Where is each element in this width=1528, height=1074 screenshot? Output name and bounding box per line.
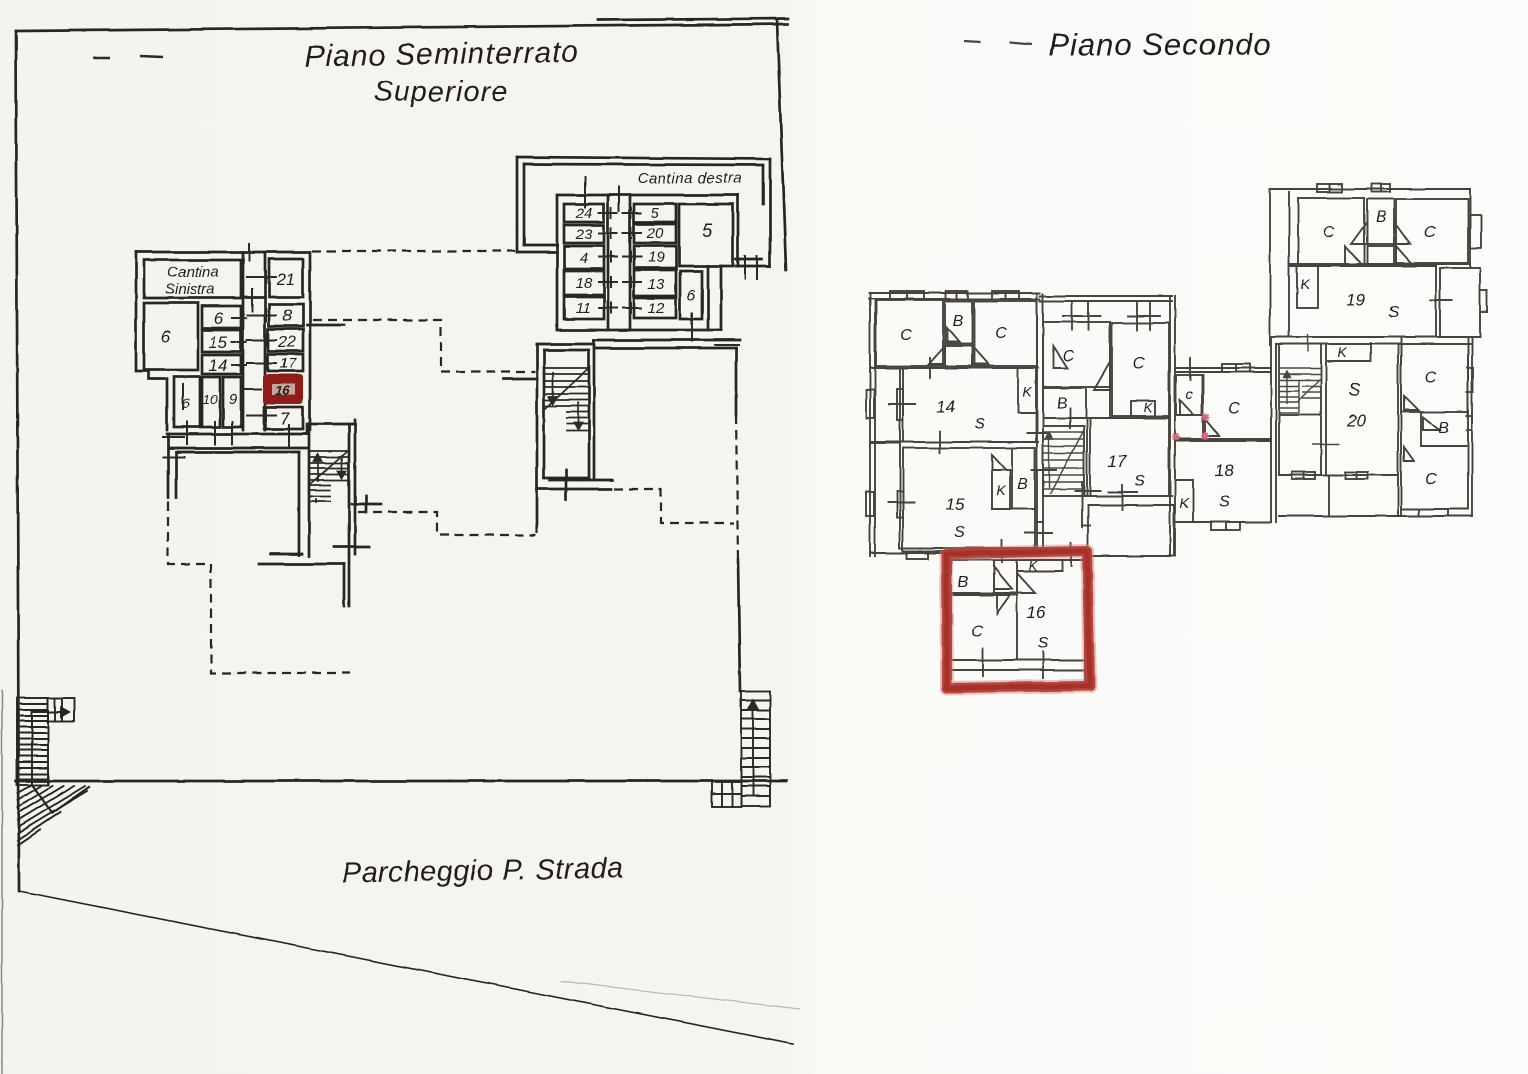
svg-text:K: K: [1337, 344, 1347, 360]
svg-text:6: 6: [687, 287, 696, 304]
svg-text:15: 15: [209, 333, 228, 352]
svg-text:19: 19: [1347, 291, 1366, 310]
svg-text:C: C: [1424, 224, 1436, 241]
svg-text:17: 17: [280, 355, 297, 372]
svg-text:Superiore: Superiore: [374, 76, 509, 108]
svg-text:B: B: [1439, 420, 1450, 437]
svg-text:K: K: [996, 482, 1006, 498]
svg-text:C: C: [995, 325, 1007, 342]
svg-text:K: K: [1179, 495, 1189, 511]
svg-text:21: 21: [276, 270, 296, 289]
svg-text:6: 6: [161, 327, 171, 346]
svg-text:12: 12: [648, 300, 665, 317]
svg-text:13: 13: [648, 276, 665, 293]
svg-text:C: C: [971, 623, 983, 640]
svg-text:K: K: [1300, 276, 1310, 292]
svg-text:6: 6: [214, 309, 224, 328]
svg-text:11: 11: [575, 300, 591, 317]
svg-text:Sinistra: Sinistra: [165, 281, 215, 298]
svg-text:20: 20: [1347, 411, 1367, 430]
svg-text:C: C: [1424, 369, 1436, 386]
svg-text:Piano Seminterrato: Piano Seminterrato: [304, 36, 579, 74]
svg-text:C: C: [1062, 348, 1074, 365]
svg-text:Piano Secondo: Piano Secondo: [1048, 27, 1271, 62]
svg-text:10: 10: [203, 392, 218, 407]
svg-text:c: c: [1186, 386, 1193, 402]
svg-text:S: S: [1348, 380, 1360, 400]
svg-text:22: 22: [277, 334, 296, 351]
svg-text:Cantina: Cantina: [167, 264, 219, 281]
svg-text:16: 16: [275, 383, 290, 398]
svg-text:C: C: [1228, 400, 1240, 417]
svg-text:17: 17: [1108, 452, 1127, 471]
svg-text:19: 19: [648, 249, 665, 266]
svg-text:S: S: [1135, 473, 1146, 490]
svg-text:B: B: [1057, 395, 1068, 412]
svg-text:S: S: [1389, 304, 1400, 321]
svg-text:23: 23: [575, 226, 593, 243]
svg-text:15: 15: [946, 495, 965, 514]
svg-text:C: C: [900, 327, 912, 344]
svg-text:B: B: [953, 313, 964, 330]
svg-text:Cantina destra: Cantina destra: [638, 170, 743, 187]
svg-text:9: 9: [229, 391, 238, 408]
svg-text:5: 5: [702, 221, 713, 242]
svg-text:C: C: [1133, 355, 1145, 372]
svg-text:20: 20: [646, 225, 664, 242]
svg-text:S: S: [975, 416, 986, 433]
svg-text:18: 18: [1215, 461, 1234, 480]
svg-text:16: 16: [1027, 603, 1046, 622]
svg-text:B: B: [1018, 476, 1029, 493]
svg-text:4: 4: [580, 250, 588, 267]
svg-text:S: S: [1038, 635, 1049, 652]
svg-text:B: B: [958, 574, 969, 591]
svg-text:K: K: [1022, 384, 1032, 400]
svg-text:18: 18: [576, 275, 593, 292]
svg-text:B: B: [1376, 209, 1387, 226]
svg-text:S: S: [1219, 494, 1230, 511]
svg-text:8: 8: [282, 306, 292, 325]
svg-text:C: C: [1425, 471, 1437, 488]
svg-text:K: K: [1144, 400, 1154, 415]
svg-text:14: 14: [209, 356, 228, 375]
svg-text:S: S: [954, 524, 965, 541]
svg-text:24: 24: [575, 205, 593, 222]
svg-text:5: 5: [651, 205, 660, 222]
svg-text:K: K: [1029, 558, 1039, 573]
svg-text:C: C: [1323, 224, 1335, 241]
svg-text:14: 14: [937, 397, 956, 416]
svg-text:Parcheggio P. Strada: Parcheggio P. Strada: [342, 853, 624, 890]
